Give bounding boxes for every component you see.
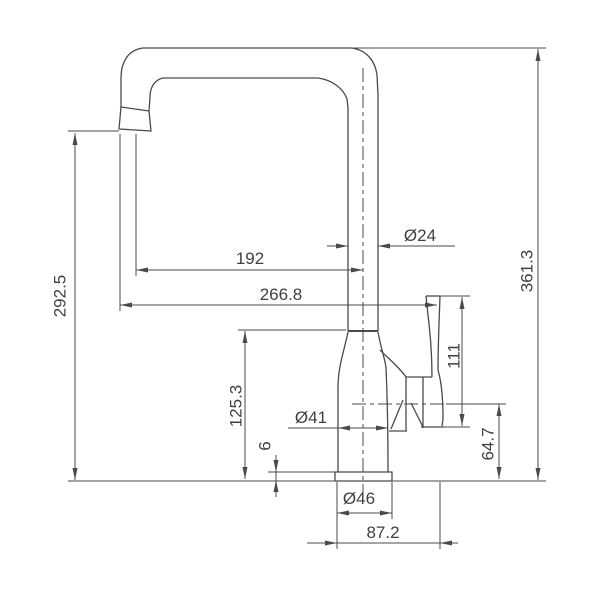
body-left-edge bbox=[338, 332, 348, 472]
arrow-body-height-up bbox=[243, 331, 248, 343]
arrow-base-diameter-right bbox=[380, 511, 392, 516]
dim-label-spout-reach: 192 bbox=[236, 249, 264, 268]
arrow-spout-reach-right bbox=[351, 268, 363, 273]
aerator-tip bbox=[119, 107, 151, 131]
arrow-spout-height-up bbox=[73, 133, 78, 145]
extension-lines bbox=[68, 48, 546, 549]
faucet-outline bbox=[119, 48, 444, 481]
dim-label-tube-diameter: Ø24 bbox=[404, 226, 436, 245]
dim-label-spout-height: 292.5 bbox=[51, 275, 70, 318]
valve-upper-bulge bbox=[380, 350, 406, 377]
arrow-pivot-height-up bbox=[497, 404, 502, 416]
dim-label-overall-height: 361.3 bbox=[518, 250, 537, 293]
spout-right-inner-curve bbox=[318, 78, 348, 331]
arrow-body-diameter-right bbox=[376, 426, 388, 431]
arrow-overall-height-up bbox=[536, 49, 541, 61]
arrow-handle-height-down bbox=[460, 414, 465, 426]
dim-label-body-height: 125.3 bbox=[227, 385, 246, 428]
arrow-handle-height-up bbox=[460, 297, 465, 309]
valve-lower-right-taper bbox=[411, 403, 423, 427]
arrow-body-diameter-left bbox=[338, 426, 350, 431]
arrow-overall-height-down bbox=[536, 468, 541, 480]
dim-label-footprint: 87.2 bbox=[366, 523, 399, 542]
dim-label-base-diameter: Ø46 bbox=[343, 489, 375, 508]
arrow-base-thickness-top bbox=[274, 460, 279, 472]
arrowheads bbox=[73, 49, 541, 546]
arrow-tube-diameter-right bbox=[378, 244, 390, 249]
dim-label-handle-height: 111 bbox=[445, 343, 464, 369]
arrow-spout-height-down bbox=[73, 468, 78, 480]
dim-label-base-thickness: 6 bbox=[256, 441, 275, 450]
handle-right-edge bbox=[438, 296, 443, 426]
arrow-tube-diameter-left bbox=[336, 244, 348, 249]
arrow-footprint-right bbox=[440, 541, 452, 546]
centerlines bbox=[352, 68, 446, 497]
spout-left-inner-curve bbox=[149, 78, 163, 111]
dim-label-overall-reach: 266.8 bbox=[260, 285, 303, 304]
arrow-base-thickness-bottom bbox=[274, 480, 279, 492]
arrow-body-height-down bbox=[243, 467, 248, 479]
spout-right-outer-curve bbox=[352, 48, 378, 331]
dimension-labels: 292.5 192 266.8 Ø24 361.3 111 125.3 Ø41 … bbox=[51, 226, 537, 542]
handle-left-edge bbox=[426, 296, 432, 377]
arrow-pivot-height-down bbox=[497, 467, 502, 479]
dim-label-body-diameter: Ø41 bbox=[295, 408, 327, 427]
arrow-base-diameter-left bbox=[337, 511, 349, 516]
arrow-footprint-left bbox=[325, 541, 337, 546]
spout-left-outer-curve bbox=[121, 48, 143, 107]
dim-label-pivot-height: 64.7 bbox=[479, 427, 498, 460]
arrow-spout-reach-left bbox=[136, 268, 148, 273]
drawing-canvas: 292.5 192 266.8 Ø24 361.3 111 125.3 Ø41 … bbox=[0, 0, 600, 600]
faucet-technical-drawing: 292.5 192 266.8 Ø24 361.3 111 125.3 Ø41 … bbox=[0, 0, 600, 600]
arrow-overall-reach-right bbox=[425, 303, 437, 308]
arrow-overall-reach-left bbox=[120, 303, 132, 308]
